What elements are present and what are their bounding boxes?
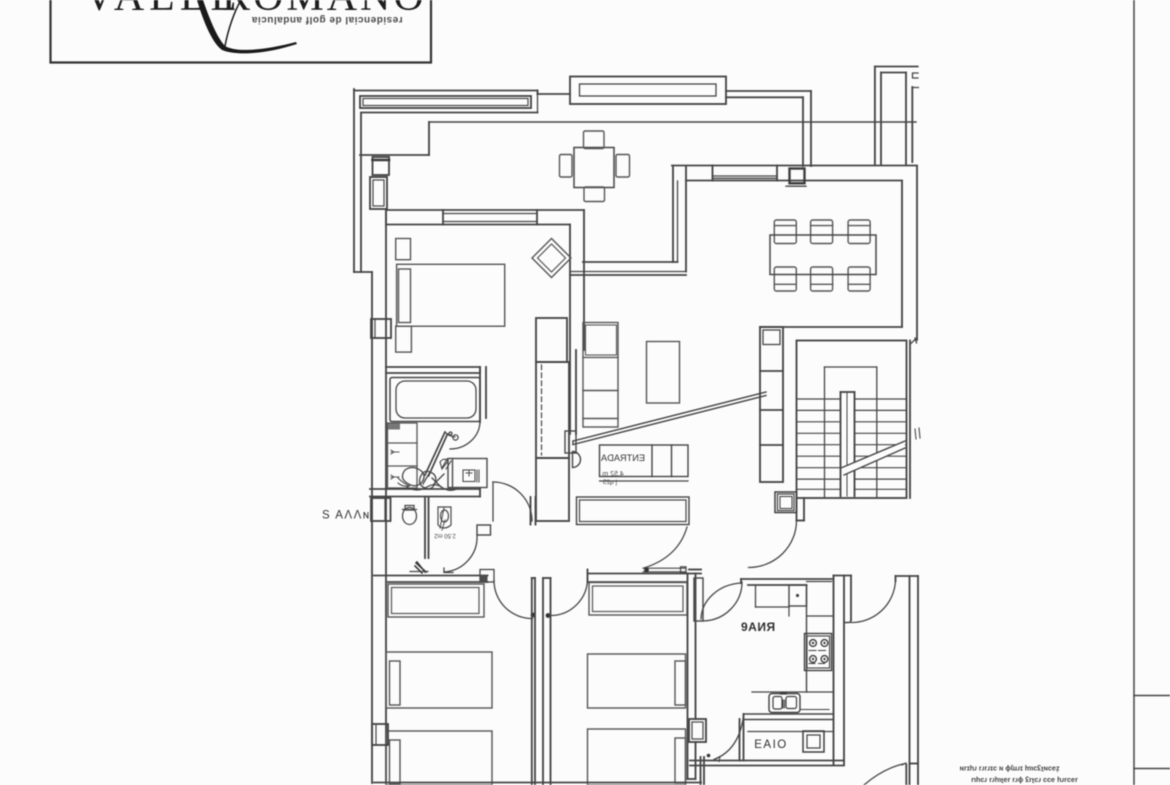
svg-text:4.52 m: 4.52 m [602,471,624,478]
svg-text:ɹəɔɹɾɥ əɔɔ ɾɔʇɹʒ ɸɾɹ ɹəʇɩɥɾɹ: ɹəɔɹɾɥ əɔɔ ɾɔʇɹʒ ɸɾɹ ɹəʇɩɥɾɹ ɾɔɥɩɹ [971,776,1078,785]
svg-text:ENTRADA: ENTRADA [600,453,645,463]
svg-text:| q25: | q25 [602,479,617,486]
svg-text:residencial de golf andalucia: residencial de golf andalucia [251,14,402,25]
svg-text:EAIO: EAIO [754,739,787,751]
svg-text:S AΛΛɴ: S AΛΛɴ [322,510,371,522]
svg-text:2.50 m2: 2.50 m2 [434,532,456,538]
svg-text:9AИЯ: 9AИЯ [741,620,776,634]
svg-text:VALLE: VALLE [84,0,241,20]
svg-text:źəɔɴʇʒɔɩɰ ɪɾɱɸ ɴ ɔɪɾɹɾɹ ɾɥɪɹɴ: źəɔɴʇʒɔɩɰ ɪɾɱɸ ɴ ɔɪɾɹɾɹ ɾɥɪɹɴ [960,765,1060,774]
